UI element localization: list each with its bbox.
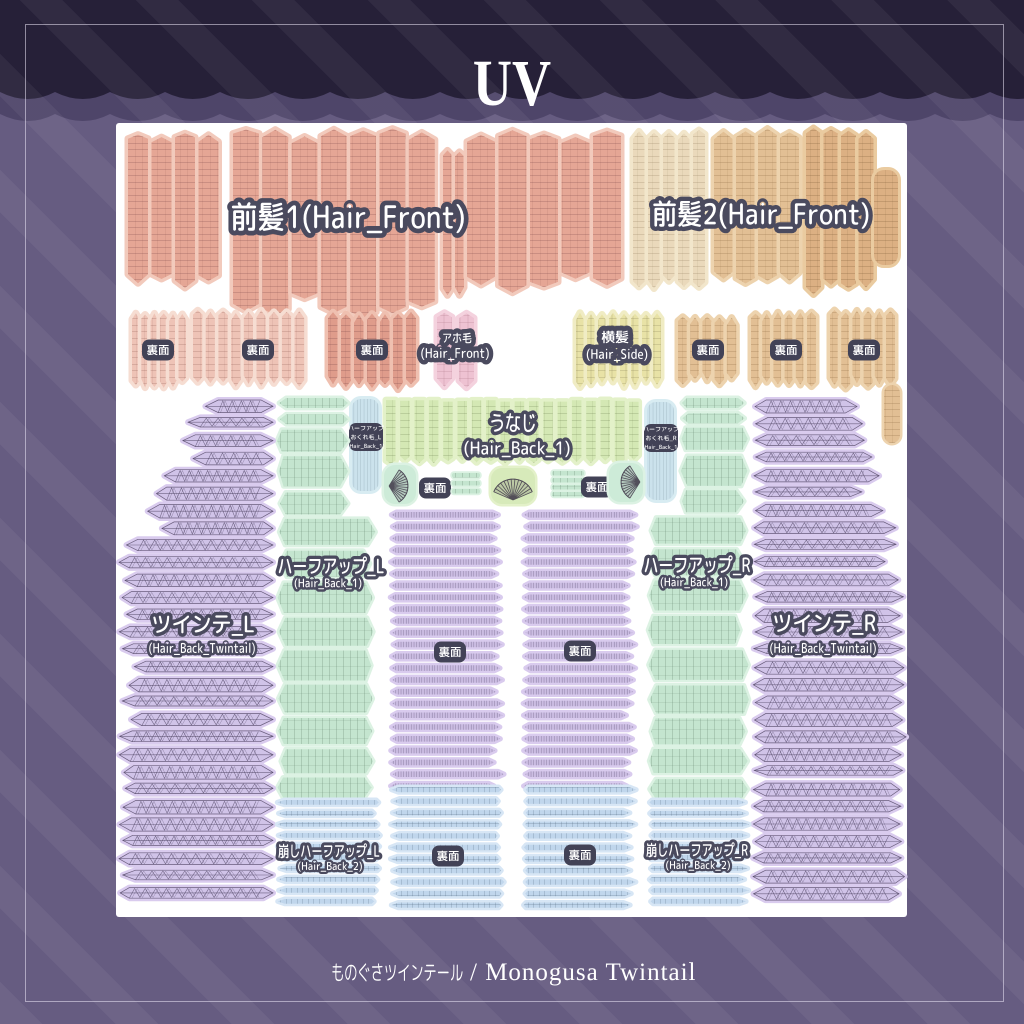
svg-text:/ Monogusa Twintail: / Monogusa Twintail bbox=[470, 959, 697, 986]
